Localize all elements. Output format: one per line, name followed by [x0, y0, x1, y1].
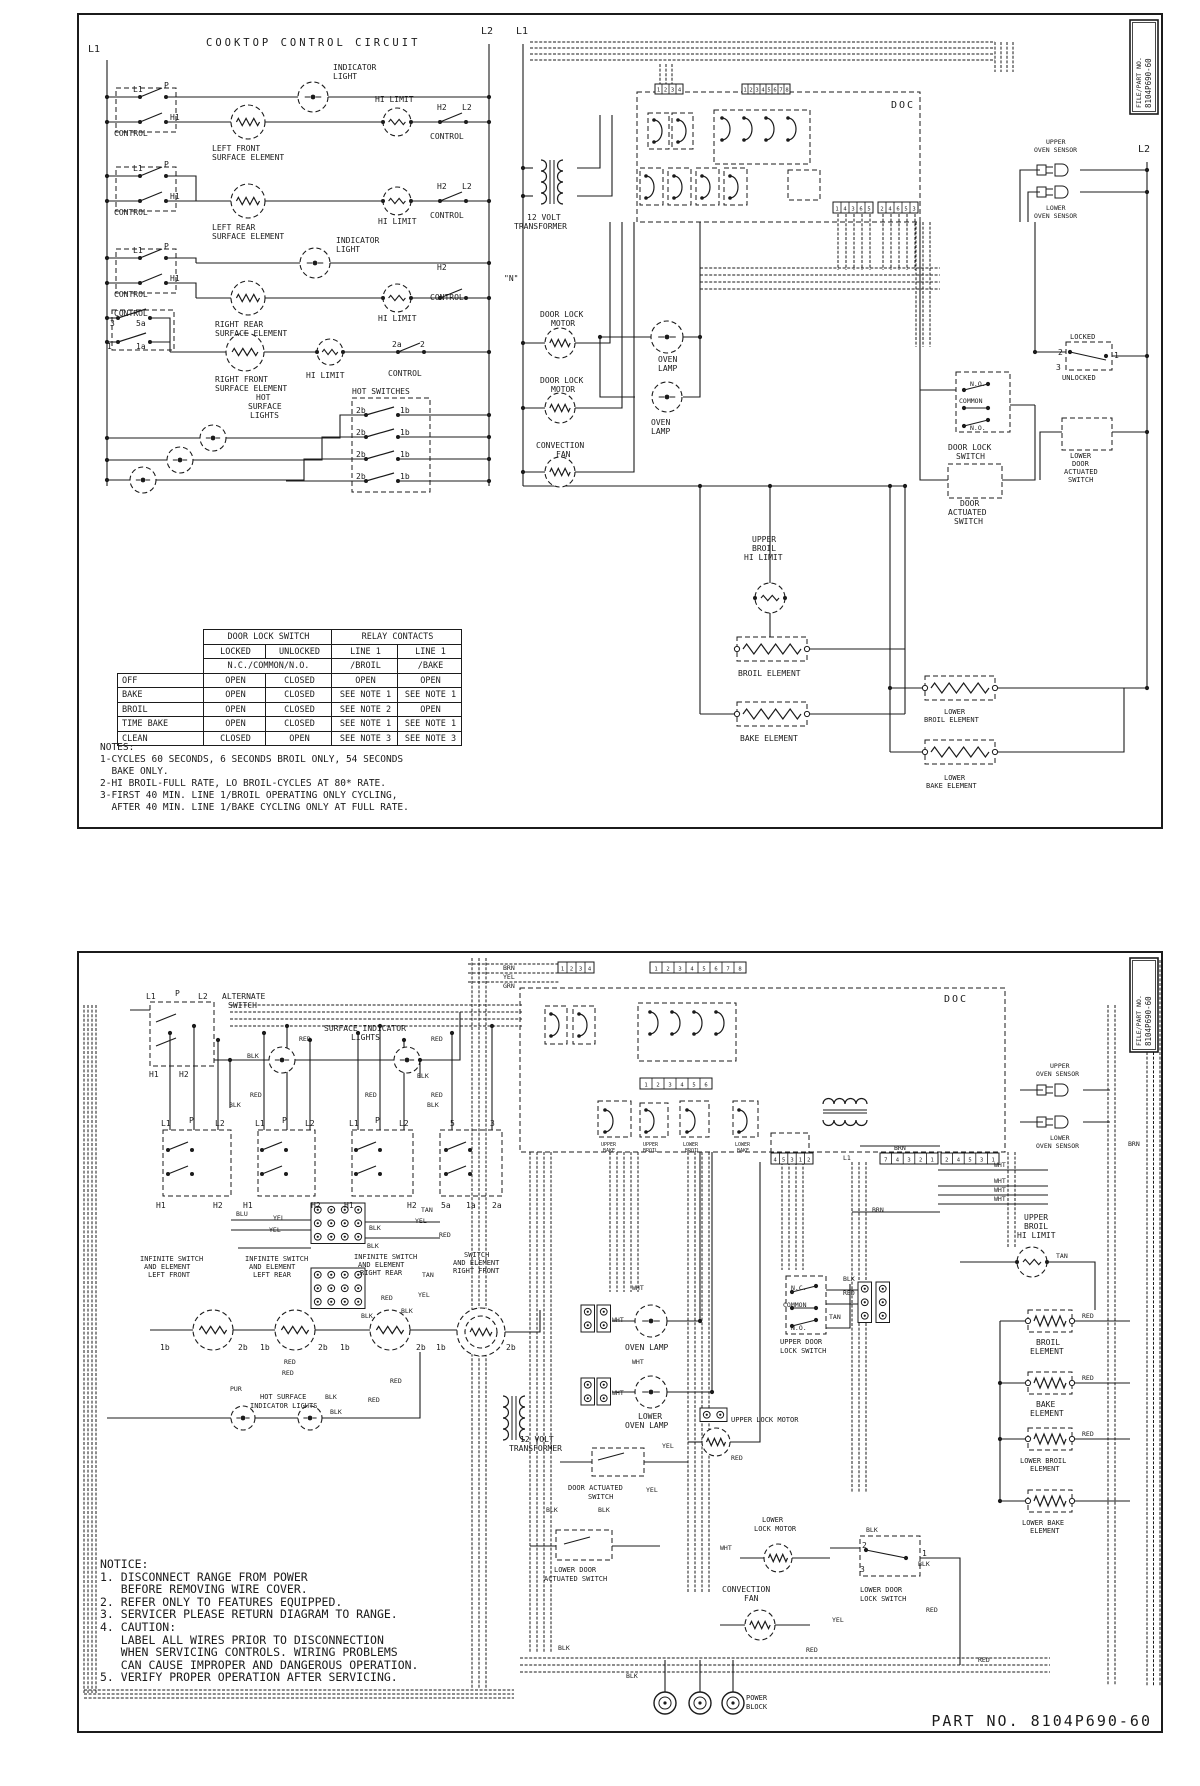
- diagram-label: 5a: [441, 1201, 451, 1210]
- switch-blade: [140, 249, 162, 258]
- table-cell: SEE NOTE 1: [331, 716, 398, 732]
- diagram-label: L2: [481, 26, 493, 37]
- table-cell: CLOSED: [265, 673, 332, 689]
- terminal-dot: [587, 1397, 589, 1399]
- diagram-label: OVEN LAMP: [625, 1421, 669, 1430]
- terminal-dot: [330, 1236, 332, 1238]
- switch-contact: [378, 1148, 382, 1152]
- junction-dot: [105, 458, 109, 462]
- component-box: [648, 113, 669, 149]
- diagram-label: H1: [170, 274, 180, 283]
- switch-contact: [438, 120, 442, 124]
- junction-dot: [1068, 350, 1072, 354]
- strip-number: 3: [668, 1082, 671, 1088]
- switch-contact: [396, 350, 400, 354]
- diagram-label: L1: [146, 992, 156, 1001]
- terminal-dot: [864, 1315, 866, 1317]
- diagram-label: N.O.: [791, 1324, 807, 1332]
- junction-dot: [402, 1038, 406, 1042]
- wire: [1070, 352, 1106, 360]
- diagram-label: WHT: [994, 1186, 1006, 1194]
- terminal-dot: [706, 1414, 708, 1416]
- junction-dot: [192, 1024, 196, 1028]
- diagram-label: PUR: [230, 1385, 242, 1393]
- terminal: [1069, 1436, 1074, 1441]
- terminal: [804, 711, 809, 716]
- terminal: [1025, 1436, 1030, 1441]
- strip-number: 5: [968, 1157, 971, 1163]
- diagram-label: L1: [133, 246, 143, 255]
- terminal-dot: [330, 1301, 332, 1303]
- diagram-label: UNLOCKED: [1062, 374, 1096, 382]
- strip-number: 1: [561, 966, 564, 972]
- diagram-label: LOWER: [1046, 204, 1066, 212]
- component-box: [788, 170, 820, 200]
- switch-contact: [422, 350, 426, 354]
- terminal: [381, 296, 385, 300]
- terminal: [714, 1032, 718, 1036]
- diagram-label: HOT SURFACE: [260, 1393, 306, 1401]
- table-cell: CLOSED: [265, 702, 332, 718]
- diagram-label: AND ELEMENT: [453, 1259, 500, 1267]
- diagram-label: DOOR ACTUATED: [568, 1484, 623, 1492]
- switch-contact: [284, 1148, 288, 1152]
- terminal: [786, 138, 790, 142]
- diagram-label: 1b: [400, 406, 410, 415]
- terminal: [672, 174, 676, 178]
- diagram-label: P: [164, 160, 169, 169]
- lamp-filament: [665, 335, 670, 340]
- strip-number: 2: [919, 1157, 922, 1163]
- diagram-label: CONVECTION: [536, 441, 584, 450]
- lamp-filament: [308, 1416, 313, 1421]
- junction-dot: [105, 316, 109, 320]
- table-cell: [117, 644, 204, 660]
- diagram-label: CONTROL: [388, 369, 422, 378]
- junction-dot: [216, 1038, 220, 1042]
- diagram-label: L2: [305, 1119, 315, 1128]
- diagram-label: L2: [1138, 144, 1150, 155]
- junction-dot: [105, 120, 109, 124]
- diagram-label: CONTROL: [114, 290, 148, 299]
- terminal: [1025, 1380, 1030, 1385]
- diagram-label: CONTROL: [114, 208, 148, 217]
- switch-contact: [138, 95, 142, 99]
- diagram-label: HI LIMIT: [744, 553, 783, 562]
- junction-dot: [1145, 190, 1149, 194]
- strip-number: 3: [671, 87, 674, 93]
- terminal: [672, 196, 676, 200]
- relay-contact-icon: [694, 1012, 702, 1034]
- tag-text: 8104P690-60: [1144, 58, 1153, 108]
- diagram-label: BLK: [369, 1224, 381, 1232]
- terminal-grid: [597, 1378, 611, 1405]
- strip-number: 6: [773, 87, 776, 93]
- diagram-label: BLK: [427, 1101, 439, 1109]
- strip-number: 3: [851, 206, 854, 212]
- diagram-label: ELEMENT: [1030, 1527, 1060, 1535]
- diagram-label: 2b: [356, 428, 366, 437]
- terminal: [1069, 1318, 1074, 1323]
- terminal-grid: [597, 1305, 611, 1332]
- terminal-dot: [357, 1236, 359, 1238]
- relay-contact-icon: [722, 118, 730, 140]
- diagram-label: BROIL: [643, 1148, 658, 1154]
- component-box: [696, 168, 719, 205]
- terminal: [685, 1108, 689, 1112]
- junction-dot: [487, 350, 491, 354]
- table-cell: DOOR LOCK SWITCH: [203, 629, 332, 645]
- lamp-filament: [178, 458, 183, 463]
- diagram-label: LEFT FRONT: [148, 1271, 191, 1279]
- diagram-label: POWER: [746, 1694, 768, 1702]
- terminal-dot: [344, 1301, 346, 1303]
- terminal-dot: [330, 1209, 332, 1211]
- switch-contact: [354, 1172, 358, 1176]
- terminal-dot: [357, 1301, 359, 1303]
- diagram-label: SWITCH: [956, 452, 985, 461]
- switch-contact: [138, 174, 142, 178]
- junction-dot: [998, 1437, 1002, 1441]
- diagram-label: N.C.: [791, 1284, 807, 1292]
- wiring-diagram-page: 1234123456781436524653123412345678743212…: [0, 0, 1200, 1786]
- relay-contact-icon: [744, 118, 752, 140]
- table-cell: OPEN: [203, 716, 266, 732]
- diagram-label: YEL: [503, 973, 515, 981]
- junction-dot: [698, 484, 702, 488]
- diagram-label: LOWER BROIL: [1020, 1457, 1066, 1465]
- wire: [995, 688, 1124, 752]
- wire: [156, 1014, 176, 1022]
- diagram-label: DOOR LOCK: [540, 310, 584, 319]
- terminal: [315, 350, 319, 354]
- diagram-label: TRANSFORMER: [509, 1444, 562, 1453]
- junction-dot: [1104, 354, 1108, 358]
- diagram-label: LOCKED: [1070, 333, 1095, 341]
- dot: [731, 1701, 734, 1704]
- terminal: [409, 120, 413, 124]
- lamp-filament: [665, 395, 670, 400]
- diagram-label: RED: [368, 1396, 380, 1404]
- relay-contact-icon: [687, 1110, 695, 1132]
- diagram-label: 2b: [506, 1343, 516, 1352]
- junction-dot: [710, 1390, 714, 1394]
- diagram-label: PART NO. 8104P690-60: [931, 1712, 1152, 1730]
- diagram-label: BROIL ELEMENT: [738, 669, 801, 678]
- diagram-label: LOCK SWITCH: [860, 1595, 906, 1603]
- relay-contact-icon: [654, 120, 662, 142]
- diagram-label: SURFACE: [248, 402, 282, 411]
- diagram-label: CONTROL: [430, 211, 464, 220]
- terminal: [742, 138, 746, 142]
- switch-contact: [468, 1172, 472, 1176]
- junction-dot: [105, 281, 109, 285]
- diagram-label: YEL: [662, 1442, 674, 1450]
- diagram-label: RED: [282, 1369, 294, 1377]
- diagram-label: RIGHT REAR: [215, 320, 263, 329]
- terminal-dot: [603, 1384, 605, 1386]
- diagram-label: RED: [731, 1454, 743, 1462]
- transformer-coil-icon: [558, 160, 564, 204]
- table-cell: OPEN: [203, 687, 266, 703]
- diagram-label: 1b: [400, 428, 410, 437]
- transformer-coil-icon: [823, 1120, 867, 1126]
- diagram-label: INFINITE SWITCH: [354, 1253, 417, 1261]
- switch-contact: [260, 1148, 264, 1152]
- diagram-label: CONTROL: [430, 132, 464, 141]
- junction-dot: [285, 1024, 289, 1028]
- terminal: [644, 1130, 648, 1134]
- diagram-label: RED: [250, 1091, 262, 1099]
- strip-number: 5: [867, 206, 870, 212]
- strip-number: 1: [657, 87, 660, 93]
- diagram-label: FAN: [556, 450, 571, 459]
- diagram-label: 3: [490, 1119, 495, 1128]
- text-line: WHEN SERVICING CONTROLS. WIRING PROBLEMS: [100, 1646, 419, 1659]
- diagram-label: ACTUATED: [1064, 468, 1098, 476]
- text-line: 2-HI BROIL-FULL RATE, LO BROIL-CYCLES AT…: [100, 778, 409, 790]
- diagram-label: BLK: [598, 1506, 610, 1514]
- diagram-label: L2: [462, 103, 472, 112]
- terminal: [692, 1010, 696, 1014]
- relay-contact-icon: [716, 1012, 724, 1034]
- table-cell: SEE NOTE 1: [397, 687, 462, 703]
- junction-dot: [450, 1031, 454, 1035]
- diagram-label: RED: [381, 1294, 393, 1302]
- relay-contact-icon: [766, 118, 774, 140]
- terminal: [409, 199, 413, 203]
- wire: [226, 415, 366, 438]
- wire: [1040, 432, 1062, 480]
- notice-block: NOTICE:1. DISCONNECT RANGE FROM POWER BE…: [100, 1558, 419, 1684]
- diagram-label: BROIL ELEMENT: [924, 716, 980, 724]
- terminal-dot: [864, 1301, 866, 1303]
- terminal-dot: [317, 1301, 319, 1303]
- diagram-label: RED: [978, 1656, 990, 1664]
- strip-number: 7: [726, 966, 729, 972]
- diagram-label: 1a: [466, 1201, 476, 1210]
- diagram-label: AND ELEMENT: [358, 1261, 405, 1269]
- wire: [150, 318, 170, 352]
- relay-contact-icon: [788, 118, 796, 140]
- diagram-label: SURFACE ELEMENT: [215, 384, 287, 393]
- strip-number: 2: [807, 1157, 810, 1163]
- diagram-label: WHT: [994, 1177, 1006, 1185]
- wire: [666, 1152, 712, 1392]
- switch-contact: [164, 281, 168, 285]
- diagram-label: RED: [431, 1091, 443, 1099]
- relay-contact-icon: [579, 1014, 587, 1036]
- diagram-label: BROIL: [752, 544, 776, 553]
- transformer-coil-icon: [541, 160, 547, 204]
- terminal: [549, 1034, 553, 1038]
- terminal: [603, 1108, 607, 1112]
- component-box: [573, 1006, 595, 1044]
- diagram-label: LOWER: [638, 1412, 662, 1421]
- strip-number: 6: [896, 206, 899, 212]
- junction-dot: [814, 1284, 818, 1288]
- sensor-plug-icon: [1055, 164, 1068, 176]
- diagram-label: L2: [198, 992, 208, 1001]
- terminal: [753, 596, 757, 600]
- junction-dot: [105, 199, 109, 203]
- terminal: [764, 138, 768, 142]
- diagram-label: 3: [860, 1565, 865, 1574]
- diagram-label: 2b: [356, 472, 366, 481]
- switch-contact: [260, 1172, 264, 1176]
- terminal-dot: [603, 1397, 605, 1399]
- diagram-label: 2: [420, 340, 425, 349]
- strip-number: 6: [714, 966, 717, 972]
- junction-dot: [904, 1556, 908, 1560]
- junction-dot: [487, 435, 491, 439]
- terminal: [549, 1012, 553, 1016]
- diagram-label: P: [375, 1116, 380, 1125]
- diagram-label: DOOR LOCK: [948, 443, 992, 452]
- text-line: 5. VERIFY PROPER OPERATION AFTER SERVICI…: [100, 1671, 419, 1684]
- diagram-label: OVEN SENSOR: [1036, 1070, 1079, 1078]
- strip-number: 1: [654, 966, 657, 972]
- switch-contact: [464, 199, 468, 203]
- junction-dot: [105, 95, 109, 99]
- component-box: [640, 168, 663, 205]
- terminal: [720, 116, 724, 120]
- switch-blade: [140, 274, 162, 283]
- terminal: [734, 646, 739, 651]
- table-cell: LINE 1: [397, 644, 462, 660]
- wire: [575, 222, 634, 472]
- diagram-label: RED: [431, 1035, 443, 1043]
- diagram-label: 2a: [392, 340, 402, 349]
- terminal: [644, 196, 648, 200]
- diagram-label: 12 VOLT: [527, 213, 561, 222]
- diagram-label: YEL: [269, 1226, 281, 1234]
- diagram-label: OVEN SENSOR: [1034, 212, 1077, 220]
- text-line: 3-FIRST 40 MIN. LINE 1/BROIL OPERATING O…: [100, 790, 409, 802]
- terminal-dot: [344, 1222, 346, 1224]
- junction-dot: [487, 199, 491, 203]
- diagram-label: ALTERNATE: [222, 992, 266, 1001]
- diagram-label: WHT: [632, 1358, 644, 1366]
- strip-number: 1: [644, 1082, 647, 1088]
- junction-dot: [814, 1318, 818, 1322]
- switch-blade: [140, 88, 162, 97]
- terminal-dot: [344, 1274, 346, 1276]
- terminal: [577, 1012, 581, 1016]
- diagram-label: P: [282, 1116, 287, 1125]
- strip-number: 1: [835, 206, 838, 212]
- diagram-label: H1: [149, 1070, 159, 1079]
- terminal: [737, 1130, 741, 1134]
- diagram-label: HI LIMIT: [378, 217, 417, 226]
- junction-dot: [521, 166, 525, 170]
- terminal: [670, 1032, 674, 1036]
- wire: [730, 1162, 760, 1442]
- diagram-label: 1b: [400, 450, 410, 459]
- switch-contact: [116, 340, 120, 344]
- strip-number: 6: [859, 206, 862, 212]
- wire: [577, 115, 600, 168]
- terminal: [648, 1032, 652, 1036]
- table-cell: LOCKED: [203, 644, 266, 660]
- wire: [577, 115, 612, 196]
- switch-blade: [366, 451, 394, 459]
- switch-blade: [440, 113, 462, 122]
- diagram-label: BAKE: [603, 1148, 615, 1154]
- wire: [683, 337, 700, 397]
- diagram-label: RED: [284, 1358, 296, 1366]
- terminal: [1069, 1380, 1074, 1385]
- terminal-dot: [344, 1236, 346, 1238]
- diagram-label: CONTROL: [114, 309, 148, 318]
- switch-contact: [284, 1172, 288, 1176]
- component-box: [520, 988, 1005, 1152]
- terminal: [922, 685, 927, 690]
- diagram-label: OVEN: [651, 418, 670, 427]
- diagram-label: TAN: [829, 1313, 841, 1321]
- diagram-label: DOOR: [960, 499, 979, 508]
- terminal-dot: [330, 1222, 332, 1224]
- terminal-grid: [581, 1305, 595, 1332]
- diagram-label: RED: [926, 1606, 938, 1614]
- table-cell: N.C./COMMON/N.O.: [203, 658, 332, 674]
- diagram-label: WHT: [612, 1389, 624, 1397]
- diagram-label: WHT: [720, 1544, 732, 1552]
- component-box: [258, 1130, 315, 1196]
- diagram-label: H2: [407, 1201, 417, 1210]
- diagram-label: 2b: [238, 1343, 248, 1352]
- diagram-label: N.O.: [970, 380, 986, 388]
- strip-number: 3: [678, 966, 681, 972]
- relay-contact-icon: [678, 120, 686, 142]
- diagram-label: UPPER LOCK MOTOR: [731, 1416, 799, 1424]
- component-box: [352, 1130, 413, 1196]
- junction-dot: [888, 484, 892, 488]
- junction-dot: [105, 174, 109, 178]
- diagram-label: DOC: [891, 100, 915, 111]
- diagram-label: "N": [504, 274, 518, 283]
- switch-blade: [118, 333, 146, 342]
- lamp-filament: [649, 1319, 654, 1324]
- switch-contact: [164, 256, 168, 260]
- dot: [663, 1701, 666, 1704]
- relay-contact-icon: [551, 1014, 559, 1036]
- diagram-label: BRN: [1128, 1140, 1140, 1148]
- terminal-dot: [357, 1209, 359, 1211]
- diagram-label: 5a: [136, 319, 146, 328]
- terminal: [648, 1010, 652, 1014]
- text-line: BEFORE REMOVING WIRE COVER.: [100, 1583, 419, 1596]
- junction-dot: [487, 479, 491, 483]
- relay-contact-icon: [605, 1110, 613, 1132]
- diagram-label: LOCK SWITCH: [780, 1347, 826, 1355]
- switch-contact: [138, 256, 142, 260]
- strip-number: 6: [704, 1082, 707, 1088]
- diagram-label: L2: [215, 1119, 225, 1128]
- diagram-label: L2: [462, 182, 472, 191]
- diagram-label: LOWER: [1070, 452, 1092, 460]
- terminal-dot: [587, 1324, 589, 1326]
- terminal: [409, 296, 413, 300]
- diagram-label: LOWER DOOR: [860, 1586, 903, 1594]
- diagram-label: 5: [450, 1119, 455, 1128]
- junction-dot: [487, 95, 491, 99]
- wire: [166, 283, 196, 298]
- diagram-label: H2: [311, 1201, 321, 1210]
- switch-contact: [444, 1172, 448, 1176]
- diagram-label: RED: [1082, 1312, 1094, 1320]
- component-box: [163, 1130, 231, 1196]
